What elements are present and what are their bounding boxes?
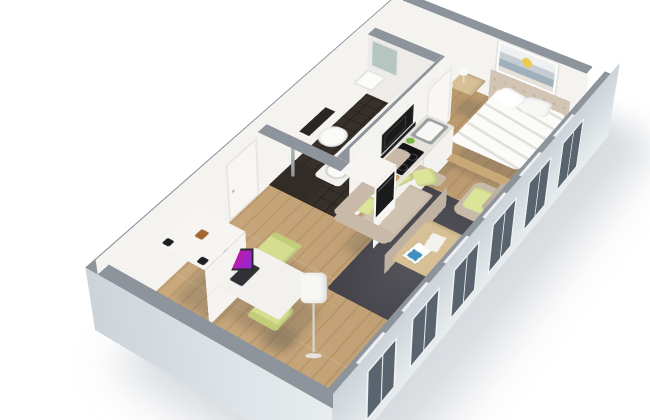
floor-lamp bbox=[300, 273, 327, 359]
magazine-cover bbox=[406, 249, 422, 261]
lamp-shade bbox=[300, 273, 327, 304]
apartment-plan bbox=[95, 49, 608, 420]
speaker bbox=[162, 238, 175, 247]
lamp-pole bbox=[313, 303, 315, 352]
decor-box bbox=[194, 229, 209, 240]
table-lamp bbox=[459, 68, 467, 83]
speaker bbox=[196, 256, 209, 265]
table-lamp-stem bbox=[463, 76, 465, 84]
door-handle bbox=[232, 189, 234, 194]
lamp-base bbox=[305, 353, 321, 358]
table-lamp-shade bbox=[459, 68, 467, 76]
perspective-camera bbox=[0, 0, 650, 420]
floor-plan-render bbox=[0, 0, 650, 420]
